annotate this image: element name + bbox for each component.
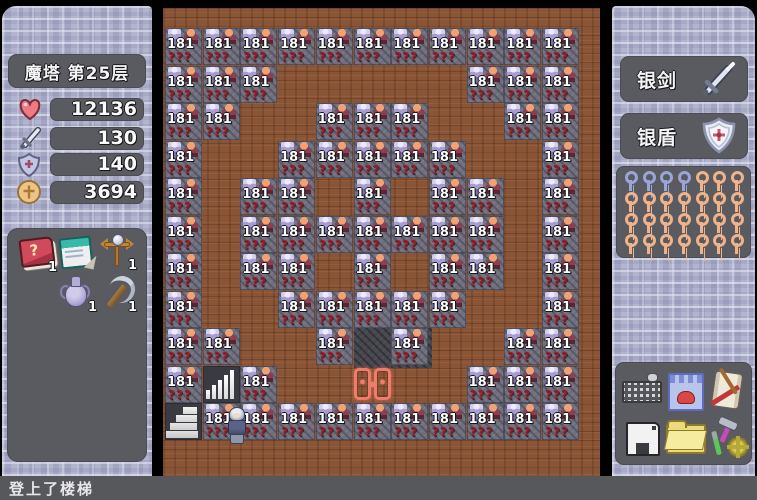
floor-indicator: 魔塔 第25层 [8, 54, 146, 88]
orange-key-icon [659, 234, 672, 254]
monster-tile[interactable]: 181??? [278, 291, 315, 328]
game-map[interactable]: 181???181???181???181???181???181???181?… [163, 8, 600, 477]
item-count: 1 [48, 260, 57, 275]
monster-tile[interactable]: 181??? [278, 28, 315, 65]
orange-key-icon [642, 213, 655, 233]
monster-tile[interactable]: 181??? [203, 103, 240, 140]
hp-value: 12136 [71, 100, 144, 119]
monster-tile[interactable]: 181??? [467, 403, 504, 440]
orange-key-icon [695, 171, 708, 191]
orange-key-icon [677, 192, 690, 212]
sword-icon [700, 60, 738, 98]
shop-icon [668, 373, 704, 411]
monster-tile[interactable]: 181??? [391, 103, 428, 140]
monster-tile[interactable]: 181??? [354, 103, 391, 140]
shield-icon [700, 117, 738, 155]
monster-tile[interactable]: 181??? [165, 291, 202, 328]
monster-tile[interactable]: 181??? [165, 253, 202, 290]
monster-tile[interactable]: 181??? [504, 366, 541, 403]
monster-tile[interactable]: 181??? [278, 253, 315, 290]
monster-tile[interactable]: 181??? [316, 328, 353, 365]
item-count: 1 [128, 258, 137, 273]
monster-tile[interactable]: 181??? [542, 28, 579, 65]
monster-tile[interactable]: 181??? [504, 28, 541, 65]
orange-key-icon [642, 192, 655, 212]
item-holy-cross[interactable]: 1 [98, 232, 136, 270]
weapon-label: 银剑 [637, 66, 700, 93]
monster-tile[interactable]: 181??? [316, 28, 353, 65]
monster-tile[interactable]: 181??? [316, 216, 353, 253]
keyboard-icon [622, 381, 662, 403]
monster-tile[interactable]: 181??? [391, 141, 428, 178]
monster-tile[interactable]: 181??? [429, 141, 466, 178]
orange-key-icon [712, 171, 725, 191]
monster-tile[interactable]: 181??? [165, 28, 202, 65]
item-monster-manual[interactable]: ? 1 [18, 234, 56, 272]
notebook-icon [58, 235, 93, 269]
orange-key-icon [624, 213, 637, 233]
monster-tile[interactable]: 181??? [542, 141, 579, 178]
sword-icon [16, 125, 44, 151]
item-count: 1 [128, 300, 137, 315]
equipped-weapon: 银剑 [620, 56, 748, 102]
monster-tile[interactable]: 181??? [165, 103, 202, 140]
monster-tile[interactable]: 181??? [504, 66, 541, 103]
monster-tile[interactable]: 181??? [467, 216, 504, 253]
monster-tile[interactable]: 181??? [240, 28, 277, 65]
item-holy-water-jar[interactable]: 1 [58, 274, 96, 312]
item-pickaxe[interactable]: 1 [98, 274, 136, 312]
monster-tile[interactable]: 181??? [542, 66, 579, 103]
monster-tile[interactable]: 181??? [165, 66, 202, 103]
monster-tile[interactable]: 181??? [354, 253, 391, 290]
monster-tile[interactable]: 181??? [354, 178, 391, 215]
monster-tile[interactable]: 181??? [316, 403, 353, 440]
monster-tile[interactable]: 181??? [542, 178, 579, 215]
shield-icon [16, 152, 42, 178]
monster-tile[interactable]: 181??? [354, 291, 391, 328]
gold-value: 3694 [84, 183, 144, 202]
monster-tile[interactable]: 181??? [504, 103, 541, 140]
monster-tile[interactable]: 181??? [429, 216, 466, 253]
monster-tile[interactable]: 181??? [278, 141, 315, 178]
defense-value-box: 140 [50, 153, 144, 176]
blue-key-icon [624, 171, 637, 191]
monster-tile[interactable]: 181??? [316, 291, 353, 328]
monster-tile[interactable]: 181??? [391, 328, 428, 365]
scroll-button[interactable] [707, 369, 747, 411]
monster-tile[interactable]: 181??? [542, 103, 579, 140]
monster-tile[interactable]: 181??? [165, 141, 202, 178]
monster-tile[interactable]: 181??? [240, 66, 277, 103]
orange-key-icon [659, 192, 672, 212]
monster-tile[interactable]: 181??? [504, 403, 541, 440]
orange-key-icon [677, 213, 690, 233]
keys-inventory [616, 166, 751, 258]
monster-tile[interactable]: 181??? [278, 178, 315, 215]
monster-tile[interactable]: 181??? [429, 291, 466, 328]
monster-tile[interactable]: 181??? [542, 403, 579, 440]
load-button[interactable] [664, 416, 704, 458]
blue-key-icon [659, 171, 672, 191]
monster-tile[interactable]: 181??? [542, 253, 579, 290]
stairs-icon[interactable] [165, 403, 202, 440]
dark-floor-tile [354, 328, 395, 368]
orange-key-icon [695, 234, 708, 254]
shop-button[interactable] [664, 369, 704, 411]
monster-tile[interactable]: 181??? [542, 366, 579, 403]
monster-tile[interactable]: 181??? [354, 28, 391, 65]
floor-label: 魔塔 第25层 [25, 59, 130, 84]
monster-tile[interactable]: 181??? [429, 403, 466, 440]
monster-tile[interactable]: 181??? [316, 103, 353, 140]
monster-tile[interactable]: 181??? [165, 216, 202, 253]
monster-tile[interactable]: 181??? [504, 328, 541, 365]
blue-key-icon [642, 171, 655, 191]
armor-label: 银盾 [637, 123, 700, 150]
monster-tile[interactable]: 181??? [467, 366, 504, 403]
right-info-panel: 银剑 银盾 [612, 6, 755, 476]
monster-tile[interactable]: 181??? [391, 403, 428, 440]
monster-tile[interactable]: 181??? [278, 216, 315, 253]
orange-key-icon [712, 192, 725, 212]
bars-icon[interactable] [203, 366, 240, 403]
gold-value-box: 3694 [50, 181, 144, 204]
scroll-icon [710, 370, 743, 410]
orange-key-icon [624, 234, 637, 254]
monster-tile[interactable]: 181??? [240, 253, 277, 290]
monster-tile[interactable]: 181??? [354, 141, 391, 178]
monster-tile[interactable]: 181??? [391, 28, 428, 65]
keyboard-button[interactable] [621, 369, 661, 411]
monster-tile[interactable]: 181??? [542, 291, 579, 328]
equipped-armor: 银盾 [620, 113, 748, 159]
orange-key-icon [712, 234, 725, 254]
tools-icon [710, 419, 746, 457]
player-sprite [225, 407, 247, 442]
floppy-icon [626, 422, 660, 456]
monster-tile[interactable]: 181??? [467, 28, 504, 65]
attack-value-box: 130 [50, 127, 144, 150]
orange-key-icon [730, 192, 743, 212]
item-auto-map[interactable] [58, 234, 96, 272]
heart-icon [16, 96, 44, 122]
orange-key-icon [712, 213, 725, 233]
blue-key-icon [677, 171, 690, 191]
monster-tile[interactable]: 181??? [467, 253, 504, 290]
folder-icon [666, 424, 706, 454]
monster-tile[interactable]: 181??? [391, 291, 428, 328]
orange-key-icon [695, 192, 708, 212]
orange-key-icon [659, 213, 672, 233]
left-stats-panel: 魔塔 第25层 12136 130 140 3694 ? 1 [2, 6, 152, 476]
monster-tile[interactable]: 181??? [542, 216, 579, 253]
attack-value: 130 [97, 129, 144, 148]
monster-tile[interactable]: 181??? [391, 216, 428, 253]
monster-tile[interactable]: 181??? [429, 253, 466, 290]
orange-key-icon [624, 192, 637, 212]
monster-tile[interactable]: 181??? [467, 66, 504, 103]
monster-tile[interactable]: 181??? [354, 403, 391, 440]
orange-key-icon [730, 213, 743, 233]
monster-tile[interactable]: 181??? [429, 178, 466, 215]
monster-tile[interactable]: 181??? [165, 178, 202, 215]
inventory-box: ? 1 1 1 1 [7, 228, 147, 462]
monster-tile[interactable]: 181??? [165, 366, 202, 403]
monster-tile[interactable]: 181??? [354, 216, 391, 253]
hp-value-box: 12136 [50, 98, 144, 121]
status-text: 登上了楼梯 [9, 478, 94, 499]
coin-icon [16, 179, 42, 205]
orange-key-icon [730, 171, 743, 191]
monster-tile[interactable]: 181??? [203, 66, 240, 103]
monster-tile[interactable]: 181??? [165, 328, 202, 365]
monster-tile[interactable]: 181??? [240, 216, 277, 253]
menu-buttons [615, 362, 752, 465]
monster-tile[interactable]: 181??? [316, 141, 353, 178]
save-button[interactable] [621, 416, 661, 458]
monster-tile[interactable]: 181??? [240, 366, 277, 403]
monster-tile[interactable]: 181??? [542, 328, 579, 365]
orange-key-icon [642, 234, 655, 254]
jar-icon [64, 276, 86, 306]
monster-tile[interactable]: 181??? [278, 403, 315, 440]
monster-tile[interactable]: 181??? [467, 178, 504, 215]
monster-tile[interactable]: 181??? [203, 328, 240, 365]
orange-key-icon [730, 234, 743, 254]
orange-key-icon [695, 213, 708, 233]
monster-tile[interactable]: 181??? [240, 178, 277, 215]
monster-tile[interactable]: 181??? [429, 28, 466, 65]
monster-tile[interactable]: 181??? [203, 28, 240, 65]
item-count: 1 [88, 300, 97, 315]
tools-button[interactable] [707, 416, 747, 458]
status-bar: 登上了楼梯 [0, 476, 757, 500]
orange-key-icon [677, 234, 690, 254]
portal-icon[interactable] [354, 366, 391, 403]
defense-value: 140 [97, 155, 144, 174]
